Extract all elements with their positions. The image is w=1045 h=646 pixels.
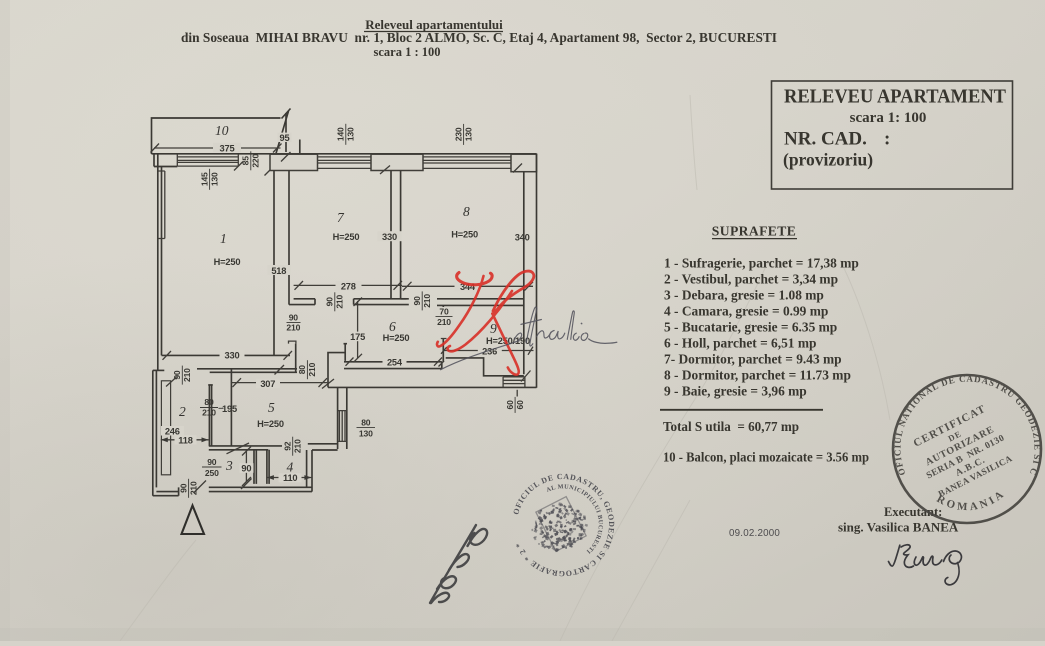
svg-text:130: 130 bbox=[346, 127, 356, 141]
svg-text:09.02.2000: 09.02.2000 bbox=[729, 528, 780, 539]
svg-text:sing. Vasilica BANEA: sing. Vasilica BANEA bbox=[838, 520, 959, 535]
svg-text:8: 8 bbox=[463, 204, 470, 219]
svg-text:250: 250 bbox=[205, 468, 219, 478]
svg-text:Total S utila = 60,77 mp: Total S utila = 60,77 mp bbox=[663, 419, 799, 434]
svg-text:118: 118 bbox=[178, 435, 192, 445]
svg-text:80: 80 bbox=[297, 365, 307, 375]
svg-text:220: 220 bbox=[251, 154, 261, 168]
svg-text:2 - Vestibul, parchet = 3,34 m: 2 - Vestibul, parchet = 3,34 mp bbox=[664, 272, 838, 287]
svg-text:1 - Sufragerie, parchet = 17,3: 1 - Sufragerie, parchet = 17,38 mp bbox=[664, 256, 859, 271]
svg-text:518: 518 bbox=[271, 266, 286, 276]
svg-text:175: 175 bbox=[350, 332, 365, 342]
svg-text:330: 330 bbox=[382, 232, 397, 242]
svg-text:210: 210 bbox=[437, 317, 451, 327]
svg-text:236: 236 bbox=[482, 346, 497, 356]
svg-text:SUPRAFETE: SUPRAFETE bbox=[712, 224, 796, 239]
svg-text:90: 90 bbox=[289, 312, 299, 322]
svg-text:8 - Dormitor, parchet = 11.73: 8 - Dormitor, parchet = 11.73 mp bbox=[664, 368, 851, 383]
svg-text:307: 307 bbox=[260, 379, 275, 389]
svg-text:scara 1 : 100: scara 1 : 100 bbox=[374, 45, 441, 59]
svg-text:H=250: H=250 bbox=[257, 419, 284, 429]
svg-text:110: 110 bbox=[283, 473, 297, 483]
svg-text:2: 2 bbox=[179, 404, 186, 419]
svg-text:H=250: H=250 bbox=[214, 257, 241, 267]
svg-text:din Soseaua MIHAI BRAVU nr.: din Soseaua MIHAI BRAVU nr. 1, Bloc 2 AL… bbox=[181, 30, 777, 45]
svg-text:210: 210 bbox=[422, 294, 432, 308]
svg-text:90: 90 bbox=[412, 296, 422, 306]
svg-text:NR. CAD.: NR. CAD. bbox=[784, 129, 867, 150]
svg-text:90: 90 bbox=[207, 457, 217, 467]
svg-text:3: 3 bbox=[225, 458, 233, 473]
svg-text:80: 80 bbox=[361, 418, 371, 428]
svg-text:10 - Balcon, placi mozaicate =: 10 - Balcon, placi mozaicate = 3.56 mp bbox=[663, 450, 869, 465]
svg-text:90: 90 bbox=[178, 483, 188, 493]
svg-text:92: 92 bbox=[283, 441, 293, 451]
svg-text:H=250: H=250 bbox=[451, 229, 478, 239]
svg-text:60: 60 bbox=[505, 400, 515, 410]
svg-text:210: 210 bbox=[335, 295, 345, 309]
svg-text:60: 60 bbox=[515, 400, 525, 410]
svg-text:6 - Holl, parchet = 6,51 mp: 6 - Holl, parchet = 6,51 mp bbox=[664, 336, 816, 351]
svg-text:3 - Debara, gresie = 1.08 mp: 3 - Debara, gresie = 1.08 mp bbox=[664, 288, 824, 303]
svg-text:1: 1 bbox=[220, 231, 227, 246]
svg-text:10: 10 bbox=[215, 123, 229, 138]
svg-text:210: 210 bbox=[182, 368, 192, 382]
svg-text:scara 1: 100: scara 1: 100 bbox=[850, 110, 927, 126]
svg-text:145: 145 bbox=[199, 172, 209, 186]
svg-text:95: 95 bbox=[280, 133, 290, 143]
svg-text:7- Dormitor, parchet = 9.43 mp: 7- Dormitor, parchet = 9.43 mp bbox=[664, 352, 842, 367]
svg-text:85: 85 bbox=[241, 156, 251, 166]
svg-text:90: 90 bbox=[325, 297, 335, 307]
svg-text:340: 340 bbox=[515, 232, 530, 242]
svg-text:140: 140 bbox=[336, 127, 346, 141]
svg-text:90: 90 bbox=[172, 370, 182, 380]
svg-text:(provizoriu): (provizoriu) bbox=[783, 150, 873, 170]
svg-text::: : bbox=[884, 129, 890, 150]
svg-text:130: 130 bbox=[359, 428, 373, 438]
svg-text:195: 195 bbox=[222, 404, 237, 414]
svg-text:210: 210 bbox=[286, 323, 300, 333]
svg-text:330: 330 bbox=[225, 351, 240, 361]
svg-text:90: 90 bbox=[241, 464, 251, 474]
svg-text:9 - Baie, gresie = 3,96 mp: 9 - Baie, gresie = 3,96 mp bbox=[664, 384, 807, 399]
svg-text:375: 375 bbox=[220, 143, 235, 153]
svg-text:70: 70 bbox=[439, 306, 449, 316]
svg-text:6: 6 bbox=[389, 319, 396, 334]
svg-text:210: 210 bbox=[307, 362, 317, 376]
svg-text:230: 230 bbox=[453, 127, 463, 141]
svg-text:210: 210 bbox=[188, 481, 198, 495]
svg-text:5 - Bucatarie, gresie = 6.35 m: 5 - Bucatarie, gresie = 6.35 mp bbox=[664, 320, 837, 335]
svg-text:4 - Camara, gresie = 0.99 mp: 4 - Camara, gresie = 0.99 mp bbox=[664, 304, 828, 319]
svg-text:H=250: H=250 bbox=[383, 333, 410, 343]
svg-text:RELEVEU APARTAMENT: RELEVEU APARTAMENT bbox=[784, 86, 1007, 108]
svg-text:254: 254 bbox=[387, 358, 403, 368]
svg-text:H=250: H=250 bbox=[333, 232, 360, 242]
svg-text:130: 130 bbox=[463, 127, 473, 141]
svg-text:278: 278 bbox=[341, 282, 356, 292]
svg-text:130: 130 bbox=[209, 172, 219, 186]
svg-text:5: 5 bbox=[268, 400, 275, 415]
svg-text:210: 210 bbox=[293, 439, 303, 453]
svg-text:Executant:: Executant: bbox=[884, 505, 942, 519]
